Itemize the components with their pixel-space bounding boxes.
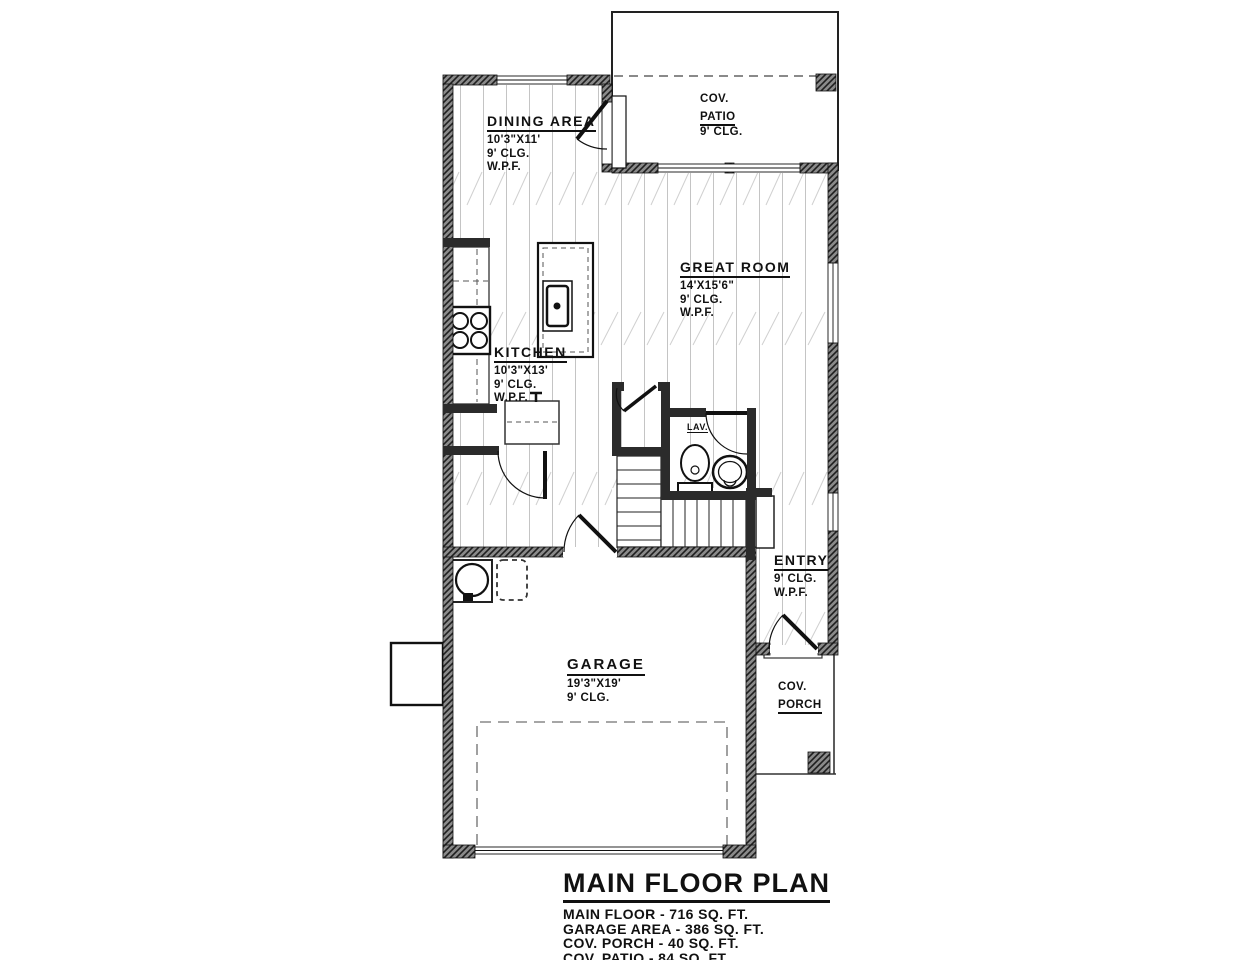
garage-house-wall	[443, 547, 563, 557]
patio-label-line2: PATIO	[700, 111, 735, 127]
room-dims: 10'3"X13'	[494, 365, 567, 379]
great-room-window	[658, 164, 800, 172]
room-name: LAV.	[687, 422, 708, 433]
area-summary: MAIN FLOOR - 716 SQ. FT. GARAGE AREA - 3…	[563, 907, 830, 960]
patio-ceiling: 9' CLG.	[700, 126, 743, 140]
room-ceiling: 9' CLG.	[567, 692, 645, 706]
room-ceiling: 9' CLG.	[487, 148, 596, 162]
room-dims: 19'3"X19'	[567, 678, 645, 692]
room-ceiling: 9' CLG.	[774, 573, 828, 587]
room-dims: 10'3"X11'	[487, 134, 596, 148]
entry-left-wall	[746, 488, 755, 560]
summary-cov-patio: COV. PATIO - 84 SQ. FT.	[563, 951, 830, 960]
room-ceiling: 9' CLG.	[494, 379, 567, 393]
patio-post	[816, 74, 836, 91]
room-ceiling: 9' CLG.	[680, 294, 790, 308]
floor-plan-drawing	[0, 0, 1242, 960]
great-room-label: GREAT ROOM 14'X15'6" 9' CLG. W.P.F.	[680, 259, 790, 321]
room-dims: 14'X15'6"	[680, 280, 790, 294]
entry-cabinet	[756, 496, 774, 548]
room-finish: W.P.F.	[494, 392, 567, 406]
room-finish: W.P.F.	[487, 161, 596, 175]
summary-main-floor: MAIN FLOOR - 716 SQ. FT.	[563, 907, 830, 922]
porch-label-line1: COV.	[778, 681, 822, 695]
lav-left-wall	[661, 382, 670, 500]
water-heater-icon	[456, 564, 488, 596]
floor-plan-page: COV. PATIO 9' CLG. DINING AREA 10'3"X11'…	[0, 0, 1242, 960]
right-wall-window-1	[828, 263, 838, 343]
summary-garage-area: GARAGE AREA - 386 SQ. FT.	[563, 922, 830, 937]
title-block: MAIN FLOOR PLAN MAIN FLOOR - 716 SQ. FT.…	[563, 868, 830, 960]
room-name: GARAGE	[567, 656, 645, 676]
right-wall	[828, 163, 838, 263]
room-finish: W.P.F.	[680, 307, 790, 321]
overhead-garage-door-track	[477, 722, 727, 845]
lav-label: LAV.	[687, 417, 708, 435]
summary-cov-porch: COV. PORCH - 40 SQ. FT.	[563, 936, 830, 951]
entry-label: ENTRY 9' CLG. W.P.F.	[774, 552, 828, 600]
side-bumpout	[391, 643, 443, 705]
garage-door-opening	[475, 847, 723, 854]
room-name: KITCHEN	[494, 344, 567, 363]
garage-fixtures	[391, 560, 727, 845]
furnace-icon	[497, 560, 527, 600]
porch-label: COV. PORCH	[778, 681, 822, 714]
garage-right-wall	[746, 557, 756, 853]
room-finish: W.P.F.	[774, 587, 828, 601]
right-wall-window-2	[828, 493, 838, 531]
room-name: GREAT ROOM	[680, 259, 790, 278]
plan-title: MAIN FLOOR PLAN	[563, 868, 830, 903]
patio-label: COV. PATIO 9' CLG.	[700, 93, 743, 140]
left-wall	[443, 84, 453, 858]
lav-top-wall	[661, 408, 706, 417]
room-name: DINING AREA	[487, 113, 596, 132]
patio-label-line1: COV.	[700, 93, 743, 107]
lav-right-wall	[747, 408, 756, 500]
dining-area-label: DINING AREA 10'3"X11' 9' CLG. W.P.F.	[487, 113, 596, 175]
pantry-cabinet	[505, 401, 559, 444]
kitchen-label: KITCHEN 10'3"X13' 9' CLG. W.P.F.	[494, 344, 567, 406]
toilet-icon	[681, 445, 709, 481]
room-name: ENTRY	[774, 552, 828, 571]
lav-bottom-wall	[661, 491, 756, 500]
porch-post	[808, 752, 830, 773]
porch-label-line2: PORCH	[778, 699, 822, 715]
water-heater-valve	[463, 593, 473, 601]
garage-label: GARAGE 19'3"X19' 9' CLG.	[567, 656, 645, 705]
covered-patio-structure	[612, 12, 838, 170]
dining-window	[497, 76, 567, 84]
